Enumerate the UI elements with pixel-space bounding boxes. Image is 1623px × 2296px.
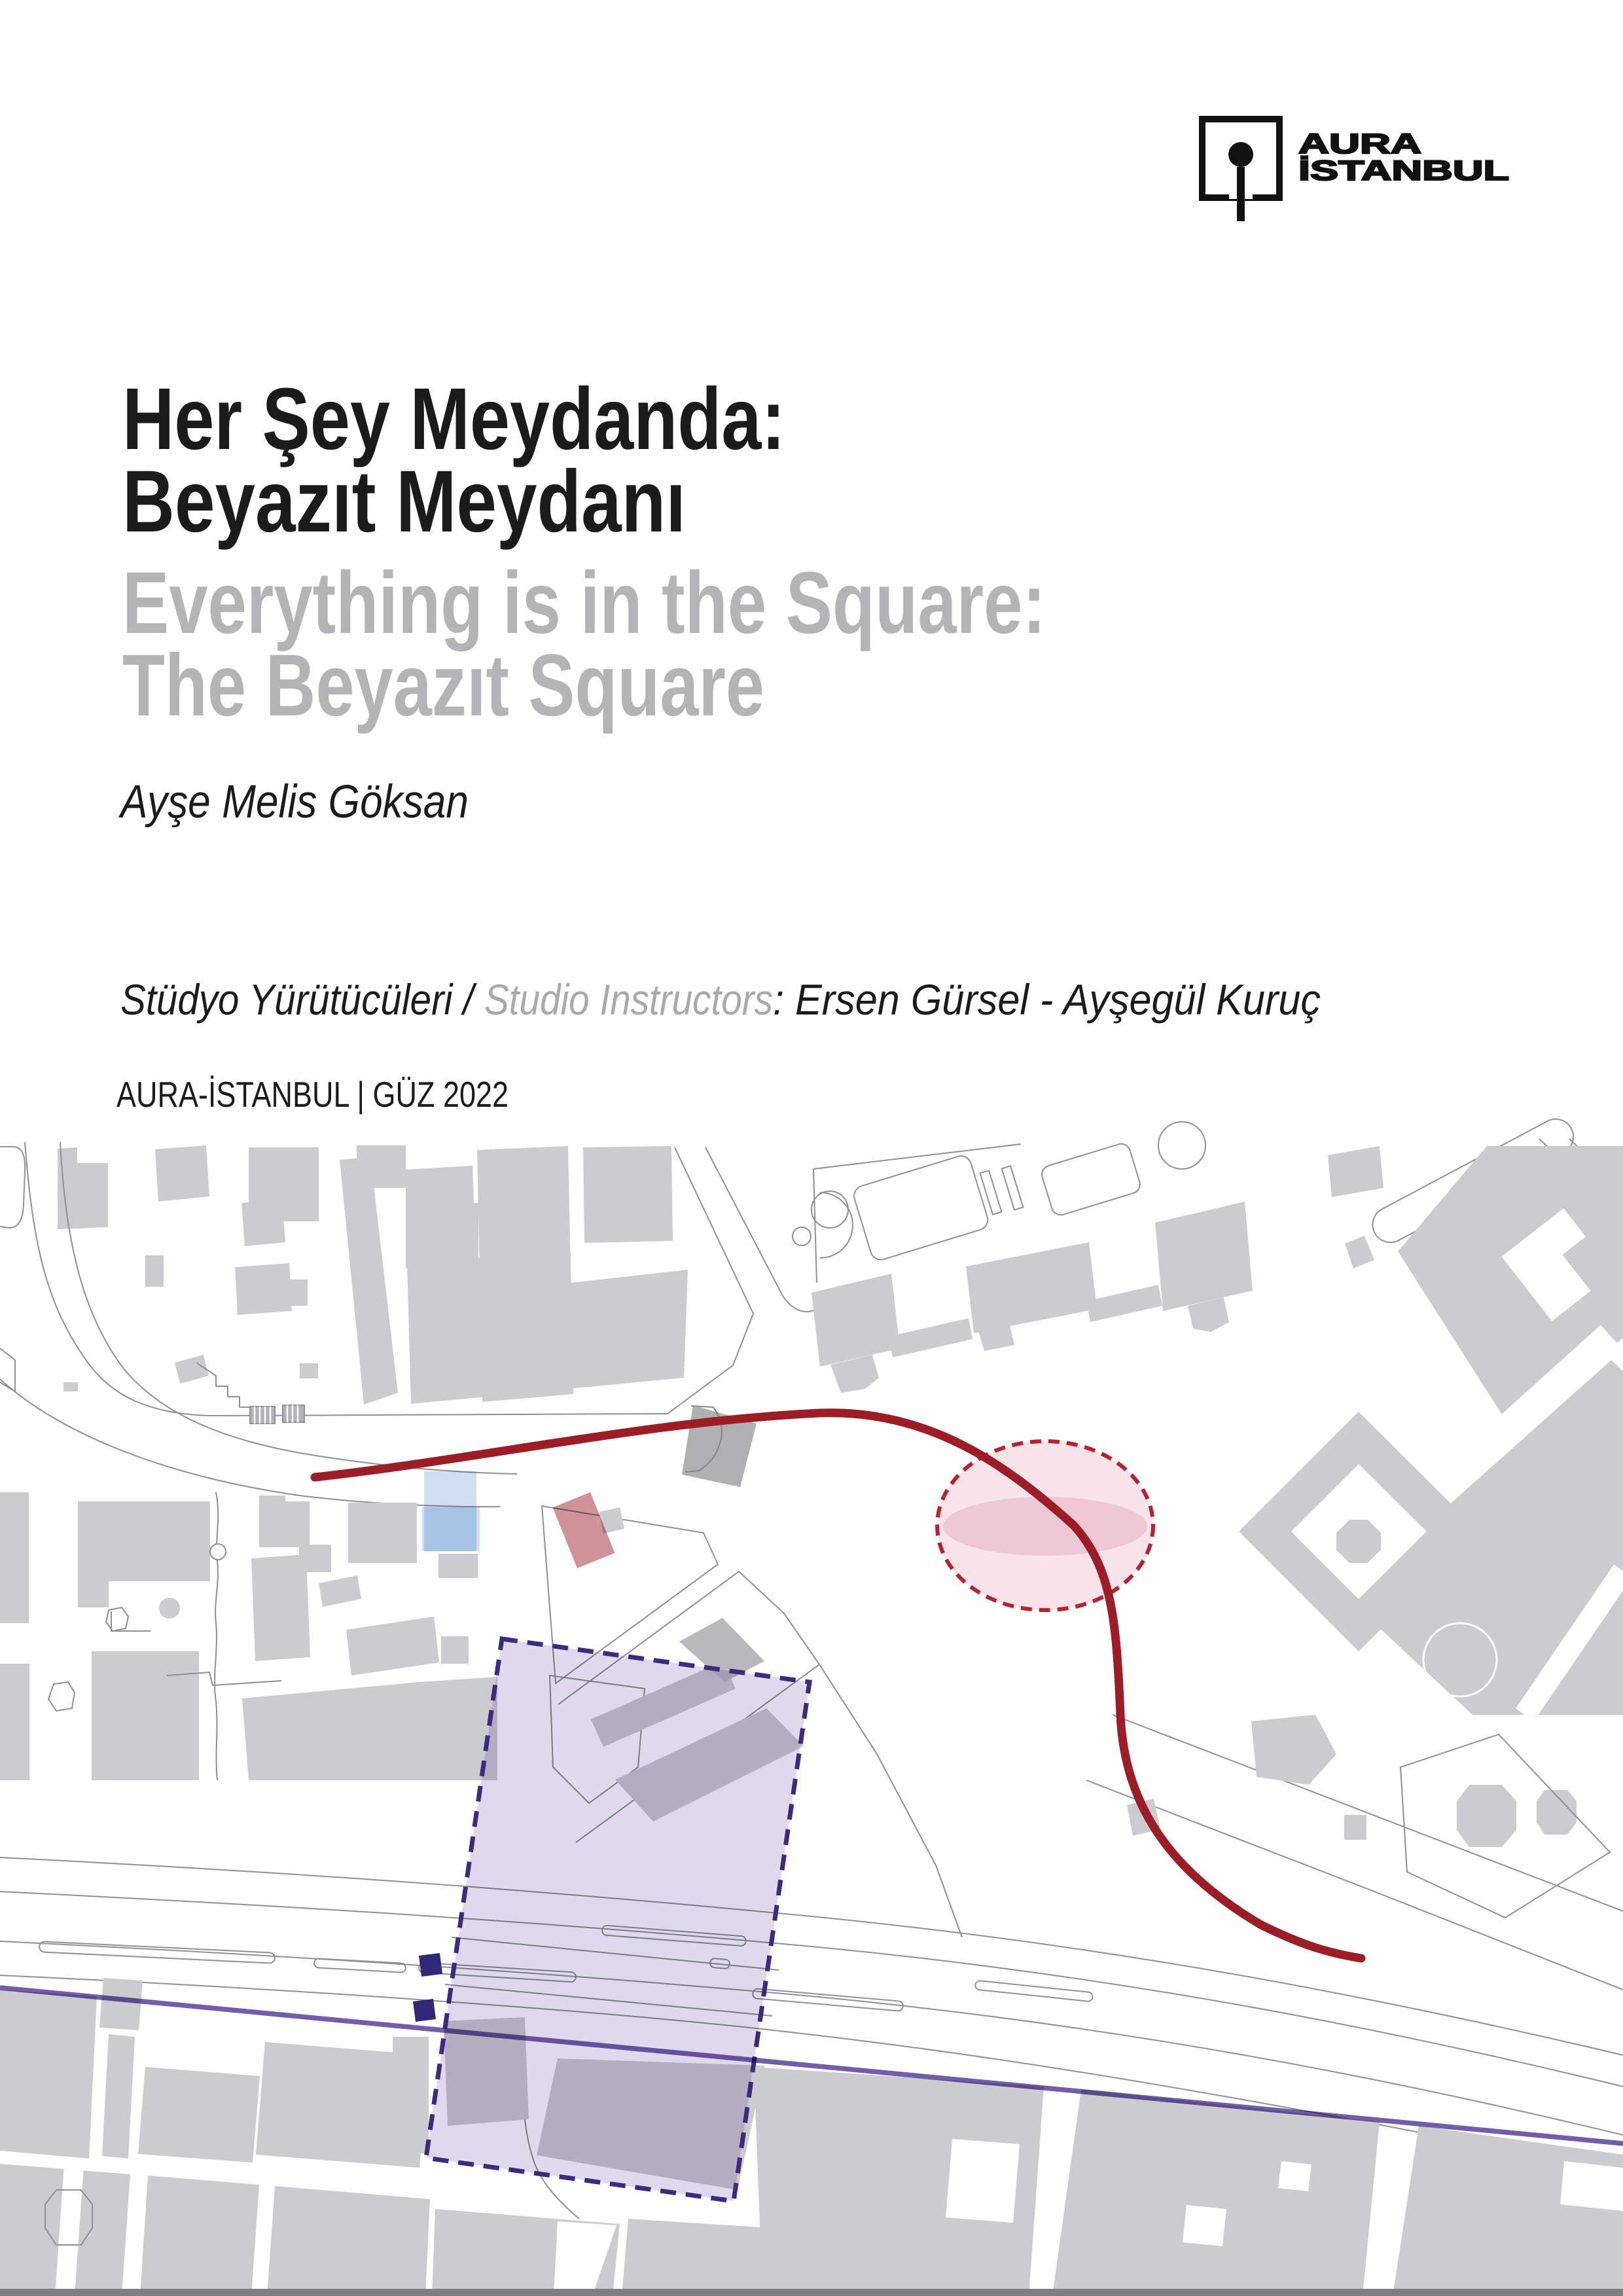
svg-text:Beyazıt Meydanı: Beyazıt Meydanı [122,453,686,550]
svg-text:The Beyazıt Square: The Beyazıt Square [122,637,764,734]
svg-text:AURA-İSTANBUL | GÜZ 2022: AURA-İSTANBUL | GÜZ 2022 [116,1074,508,1115]
svg-text:Stüdyo Yürütücüleri / Studio I: Stüdyo Yürütücüleri / Studio Instructors… [120,975,1321,1024]
svg-text:Ayşe Melis Göksan: Ayşe Melis Göksan [118,776,469,828]
svg-text:İSTANBUL: İSTANBUL [1298,155,1509,187]
